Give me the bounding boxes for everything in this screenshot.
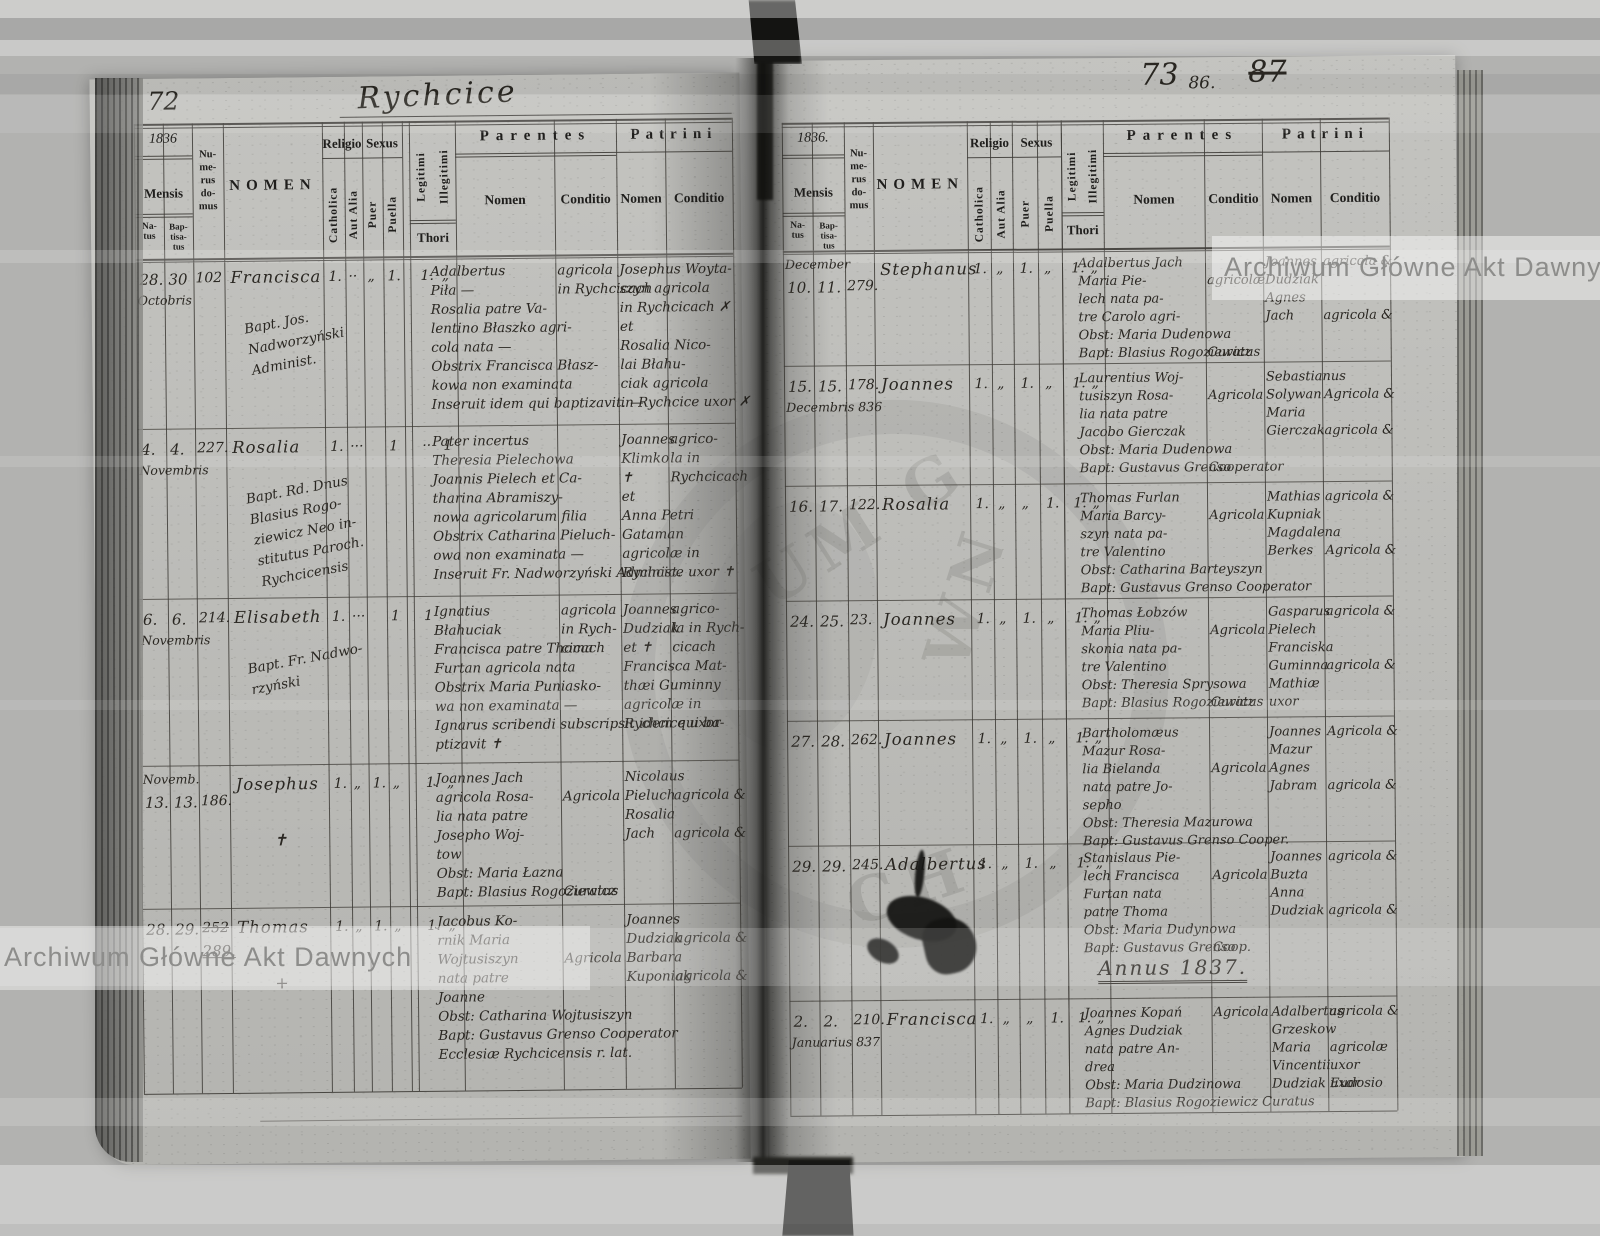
parentes-conditio-label: Conditio bbox=[1204, 191, 1262, 208]
parentes-nomen-text: Furtan nata bbox=[1083, 887, 1161, 903]
entry-natus-day: 24. bbox=[790, 613, 814, 631]
patrini-conditio-text: uxor bbox=[1330, 1058, 1360, 1073]
illegitimi-label: Illegitimi bbox=[437, 137, 450, 217]
patrini-nomen-text: Franciska bbox=[1268, 640, 1333, 656]
entry-natus-day: 2. bbox=[794, 1013, 808, 1031]
parentes-nomen-text: Obstrix Catharina Pieluch- bbox=[433, 527, 615, 545]
register-table-right: 1836.MensisNa- tusBap- tisa- tusNu- me- … bbox=[758, 55, 1465, 1163]
patrini-nomen-text: Dudziak bbox=[1271, 903, 1325, 918]
parentes-nomen-text: Wojtusiszyn bbox=[437, 951, 518, 968]
parentes-conditio-text: in Rych- bbox=[561, 621, 617, 638]
thori-overline-2 bbox=[1062, 215, 1104, 216]
patrini-nomen-label: Nomen bbox=[1262, 190, 1320, 207]
parentes-nomen-text: Maria Barcy- bbox=[1080, 509, 1166, 525]
entry-mark-puella: 1 bbox=[391, 608, 400, 624]
patrini-nomen-text: Anna bbox=[1270, 885, 1304, 900]
religio-label: Religio bbox=[967, 135, 1012, 151]
sexus-label: Sexus bbox=[1012, 134, 1061, 150]
patrini-nomen-text: Vincentii bbox=[1272, 1058, 1331, 1074]
parentes-nomen-text: owa non examinata — bbox=[433, 546, 584, 564]
patrini-nomen-text: Grzeskow bbox=[1272, 1022, 1337, 1038]
patrini-conditio-text: agricola & bbox=[1324, 423, 1393, 439]
entry-mark-puer: 1. bbox=[1023, 611, 1036, 627]
column-rule bbox=[344, 122, 355, 1092]
parentes-nomen-text: Thomas Furlan bbox=[1080, 490, 1180, 506]
patrini-nomen-text: ciak agricola bbox=[620, 375, 708, 392]
parentes-conditio-text: Curatus bbox=[1211, 695, 1264, 710]
entry-baptisatus-day: 25. bbox=[820, 612, 844, 630]
patrini-nomen-text: Kupniak bbox=[1267, 507, 1321, 522]
parentes-conditio-text: agricola bbox=[561, 602, 617, 619]
entry-house-number: 279. bbox=[847, 278, 878, 294]
entry-mark-puella: 1. bbox=[387, 268, 401, 284]
patrini-nomen-text: Rosalia Nico- bbox=[620, 337, 711, 354]
parentes-nomen-text: Obst: Theresia Mazurowa bbox=[1083, 815, 1253, 831]
thori-overline bbox=[410, 220, 456, 221]
column-rule bbox=[163, 124, 174, 1094]
baptisatus-label: Bap- tisa- tus bbox=[164, 221, 193, 251]
entry-mark-aut-alia: „ bbox=[354, 776, 361, 792]
parentes-nomen-text: Adalbertus Jach bbox=[1078, 255, 1183, 271]
patrini-nomen-text: Joannes bbox=[1265, 254, 1317, 269]
entry-mark-aut-alia: „ bbox=[1000, 731, 1007, 747]
entry-mark-catholica: 1. bbox=[974, 376, 987, 392]
entry-mark-catholica: 1. bbox=[977, 611, 990, 627]
patrini-nomen-text: uxor bbox=[1269, 694, 1299, 709]
entry-mark-puer: 1. bbox=[1025, 856, 1038, 872]
parentes-nomen-text: tre Valentino bbox=[1081, 660, 1166, 676]
parentes-nomen-text: Adalbertus bbox=[430, 263, 505, 280]
patrini-nomen-text: Gasparus bbox=[1268, 604, 1330, 620]
patrini-nomen-text: ✝ bbox=[621, 470, 632, 486]
parentes-conditio-text: Curatus bbox=[564, 883, 619, 900]
patrini-conditio-text: agrico- bbox=[670, 431, 718, 447]
patrini-nomen-text: Maria bbox=[1272, 1040, 1311, 1055]
parentes-nomen-text: Thomas Łobzów bbox=[1081, 605, 1188, 621]
patrini-nomen-text: Barbara bbox=[626, 949, 682, 966]
parentes-nomen-text: Obstrix Maria Puniasko- bbox=[435, 678, 602, 696]
parentes-nomen-text: Bapt: Blasius Rogoziewicz Curatus bbox=[1085, 1094, 1315, 1111]
entry-mark-catholica: 1. bbox=[973, 261, 986, 277]
parentes-label: Parentes bbox=[455, 127, 616, 146]
patrini-nomen-text: Pielech bbox=[1268, 622, 1316, 637]
entry-baptisatus-day: 11. bbox=[817, 278, 841, 296]
entry-name: Adalbertus bbox=[885, 854, 987, 874]
entry-natus-day: 4. bbox=[141, 441, 156, 459]
patrini-nomen-text: Dudziak bbox=[1265, 272, 1319, 287]
parentes-nomen-text: nowa agricolarum filia bbox=[433, 508, 587, 526]
entry-mark-puella: „ bbox=[1049, 855, 1056, 871]
parentes-nomen-text: Obst: Maria Dudenowa bbox=[1079, 327, 1232, 343]
parentes-conditio-text: Agricola bbox=[563, 788, 620, 805]
parentes-nomen-text: patre Thoma bbox=[1084, 905, 1168, 921]
patrini-nomen-text: Agnes bbox=[1265, 290, 1306, 305]
patrini-nomen-text: in Rychcice uxor ✗ bbox=[621, 394, 750, 411]
entry-natus-day: 16. bbox=[789, 498, 813, 516]
parentes-nomen-text: Furtan agricola nata bbox=[434, 659, 575, 676]
patrini-conditio-label: Conditio bbox=[1320, 190, 1389, 207]
entry-mark-catholica: 1. bbox=[976, 496, 989, 512]
parentes-nomen-text: Joannes Kopań bbox=[1084, 1005, 1182, 1021]
sexus-underline bbox=[362, 157, 402, 158]
parentes-nomen-text: nata patre Jo- bbox=[1082, 779, 1172, 795]
patrini-nomen-text: Joannes bbox=[626, 911, 680, 928]
entry-name: Joannes bbox=[881, 374, 954, 394]
parentes-nomen-text: Bapt: Gustavus Grenso Cooper. bbox=[1083, 832, 1289, 849]
entry-house-number: 178. bbox=[848, 377, 879, 393]
parentes-nomen-text: lech Francisca bbox=[1083, 868, 1179, 884]
entry-name-cross-mark: + bbox=[275, 973, 289, 992]
patrini-nomen-text: Josephus Woyta- bbox=[619, 261, 732, 278]
entry-mark-catholica: 1. bbox=[978, 731, 991, 747]
numerus-domus-label: Nu- me- rus do- mus bbox=[844, 147, 874, 212]
parentes-nomen-text: Obst: Maria Dudzinowa bbox=[1085, 1077, 1241, 1093]
entry-house-number: 262. bbox=[851, 732, 882, 748]
parentes-conditio-text: Cooperator bbox=[1209, 459, 1284, 475]
patrini-nomen-text: Joannes bbox=[621, 431, 675, 448]
entry-house-number: 214. bbox=[199, 610, 230, 626]
entry-month: Octobris bbox=[138, 292, 192, 308]
baptisatus-label: Bap- tisa- tus bbox=[813, 220, 845, 250]
entry-mark-legitimi: 1 bbox=[424, 608, 433, 624]
patrini-nomen-text: Mathias bbox=[1267, 489, 1320, 504]
parentes-conditio-text: Agricola bbox=[564, 950, 621, 967]
parentes-nomen-text: szyn nata pa- bbox=[1080, 527, 1167, 543]
parentes-nomen-text: Theresia Pielechowa bbox=[432, 451, 574, 468]
parentes-nomen-text: Ecclesiæ Rychcicensis r. lat. bbox=[438, 1045, 632, 1063]
entry-house-number: 102 bbox=[195, 270, 222, 286]
entry-mark-puella: „ bbox=[1045, 376, 1052, 392]
sexus-underline bbox=[1012, 156, 1061, 157]
parentes-nomen-text: Obst: Catharina Wojtusiszyn bbox=[438, 1007, 632, 1025]
parentes-nomen-text: lentino Błaszko agri- bbox=[431, 319, 572, 336]
thori-label: Thori bbox=[410, 230, 456, 246]
parentes-nomen-text: Pater incertus bbox=[432, 433, 529, 450]
entry-month: December bbox=[785, 256, 850, 272]
entry-natus-day: 28. bbox=[146, 921, 170, 939]
parentes-conditio-text: Agricola bbox=[1209, 508, 1264, 523]
scan-band bbox=[0, 0, 1600, 18]
patrini-nomen-text: Klimko bbox=[621, 450, 669, 467]
patrini-nomen-text: Mazur bbox=[1269, 742, 1312, 757]
parentes-nomen-text: tow bbox=[436, 847, 461, 863]
patrini-nomen-text: Gierczak bbox=[1266, 423, 1324, 439]
parentes-nomen-text: Bartholomæus bbox=[1082, 725, 1179, 741]
patrini-underline bbox=[616, 151, 732, 153]
entry-mark-legitimi: ·· bbox=[422, 438, 431, 454]
patrini-conditio-text: agricola & bbox=[1329, 1004, 1398, 1020]
entry-name: Rosalia bbox=[882, 494, 950, 514]
entry-mark-puer: „ bbox=[1022, 496, 1029, 512]
patrini-nomen-text: Dudziak bbox=[626, 930, 682, 947]
column-rule bbox=[362, 122, 373, 1092]
parentes-nomen-text: Obst: Maria Dudenowa bbox=[1080, 442, 1233, 458]
entry-name: Francisca bbox=[886, 1009, 977, 1029]
patrini-nomen-label: Nomen bbox=[617, 190, 666, 207]
entry-mark-aut-alia: „ bbox=[997, 376, 1004, 392]
entry-mark-aut-alia: „ bbox=[1003, 1011, 1010, 1027]
parentes-nomen-text: sepho bbox=[1083, 798, 1122, 813]
entry-house-number: 23. bbox=[850, 612, 872, 628]
parentes-nomen-text: lia nata patre bbox=[1079, 407, 1168, 423]
parentes-nomen-text: lech nata pa- bbox=[1078, 292, 1163, 308]
patrini-nomen-text: Sebastianus bbox=[1266, 369, 1346, 385]
illegitimi-label: Illegitimi bbox=[1086, 136, 1099, 216]
parentes-nomen-text: Joannes Jach bbox=[436, 770, 524, 787]
parentes-conditio-text: agricolæ bbox=[1207, 273, 1265, 289]
religio-underline bbox=[967, 157, 1012, 158]
parentes-nomen-text: Joanne bbox=[438, 989, 485, 1005]
parentes-conditio-text: Coop. bbox=[1213, 940, 1251, 955]
parentes-conditio-label: Conditio bbox=[555, 191, 617, 208]
year-label: 1836. bbox=[782, 130, 844, 147]
patrini-nomen-text: szyn agricola bbox=[619, 280, 709, 297]
parentes-underline-2 bbox=[455, 155, 616, 158]
patrini-nomen-text: et bbox=[620, 319, 634, 335]
puer-label: Puer bbox=[1019, 174, 1032, 254]
parentes-nomen-text: kowa non examinata bbox=[431, 376, 572, 393]
entry-house-number: 210. bbox=[854, 1012, 885, 1028]
legitimi-label: Legitimi bbox=[1065, 136, 1078, 216]
entry-mark-puer: 1. bbox=[1024, 731, 1037, 747]
entry-month: Decembris 836 bbox=[786, 399, 882, 415]
patrini-nomen-text: Joannes bbox=[1270, 849, 1322, 864]
parentes-nomen-text: tusiszyn Rosa- bbox=[1079, 388, 1173, 404]
parentes-nomen-text: Mazur Rosa- bbox=[1082, 744, 1165, 760]
entry-mark-puer: 1. bbox=[373, 775, 387, 791]
entry-mark-aut-alia: „ bbox=[1001, 856, 1008, 872]
entry-mark-puella: 1. bbox=[1051, 1010, 1064, 1026]
entry-mark-catholica: 1. bbox=[335, 919, 349, 935]
entry-baptisatus-day: 17. bbox=[819, 497, 843, 515]
patrini-nomen-text: Jabram bbox=[1269, 778, 1317, 793]
aut-alia-label: Aut Alia bbox=[347, 175, 360, 255]
clergy-note-line: Bapt. Fr. Nadwo- bbox=[246, 640, 363, 677]
catholica-label: Catholica bbox=[327, 175, 340, 255]
entry-name: Thomas bbox=[237, 917, 309, 937]
entry-mark-aut-alia: „ bbox=[355, 919, 362, 935]
parentes-nomen-label: Nomen bbox=[1103, 191, 1204, 208]
patrini-conditio-text: agricola & bbox=[1326, 604, 1395, 620]
entry-house-number: 227. bbox=[197, 440, 228, 456]
parentes-nomen-text: Agnes Dudziak bbox=[1085, 1023, 1183, 1039]
parentes-underline bbox=[1103, 152, 1262, 154]
entry-baptisatus-day: 30 bbox=[168, 270, 187, 288]
parentes-nomen-text: Obstrix Francisca Błasz- bbox=[431, 357, 598, 375]
entry-mark-aut-alia: „ bbox=[996, 261, 1003, 277]
parentes-nomen-text: cola nata — bbox=[431, 339, 512, 356]
entry-month: Novembris bbox=[141, 632, 210, 648]
entry-natus-day: 29. bbox=[792, 858, 816, 876]
entry-mark-puer: 1. bbox=[1020, 376, 1033, 392]
entry-name-cross-mark: ✝ bbox=[274, 830, 288, 849]
parentes-nomen-text: Obst: Maria Dudynowa bbox=[1084, 922, 1236, 938]
entry-mark-aut-alia: „ bbox=[999, 611, 1006, 627]
entry-house-number: 245. bbox=[852, 857, 883, 873]
entry-mark-catholica: 1. bbox=[979, 856, 992, 872]
patrini-nomen-text: Mathiæ bbox=[1269, 676, 1320, 691]
parentes-nomen-text: Ignatius bbox=[434, 603, 490, 620]
entry-mark-puer: 1. bbox=[1019, 261, 1032, 277]
parentes-nomen-text: tre Valentino bbox=[1080, 545, 1165, 561]
entry-mark-aut-alia: ·· bbox=[348, 269, 357, 285]
entry-mark-puella: „ bbox=[394, 918, 401, 934]
entry-baptisatus-day: 29. bbox=[175, 920, 199, 938]
entry-natus-day: 27. bbox=[791, 733, 815, 751]
patrini-nomen-text: Guminna bbox=[1268, 658, 1328, 674]
patrini-conditio-text: agricolæ bbox=[1330, 1040, 1388, 1056]
parentes-nomen-text: Obst: Theresia Sprysowa bbox=[1082, 677, 1247, 693]
patrini-conditio-text: agricola & bbox=[1323, 308, 1392, 324]
thori-overline-2 bbox=[410, 223, 456, 224]
entry-mark-puella: „ bbox=[393, 775, 400, 791]
patrini-conditio-text: agricola & bbox=[1325, 489, 1394, 505]
entry-mark-catholica: 1. bbox=[334, 776, 348, 792]
puella-label: Puella bbox=[386, 174, 399, 254]
parentes-nomen-text: nata patre bbox=[438, 970, 509, 987]
entry-name: Stephanus bbox=[880, 259, 978, 279]
mensis-label: Mensis bbox=[782, 184, 844, 201]
patrini-underline bbox=[1262, 151, 1389, 153]
mensis-label: Mensis bbox=[134, 185, 192, 202]
parentes-nomen-text: Błahuciak bbox=[434, 622, 502, 639]
patrini-conditio-text: Agricola & bbox=[1324, 387, 1395, 403]
patrini-conditio-text: Eudosio bbox=[1330, 1076, 1383, 1091]
patrini-nomen-text: Agnes bbox=[1269, 760, 1310, 775]
parentes-nomen-text: tre Carolo agri- bbox=[1078, 309, 1180, 325]
parentes-nomen-text: Jacobo Gierczak bbox=[1079, 424, 1186, 440]
sexus-label: Sexus bbox=[362, 135, 402, 151]
entry-baptisatus-day: 29. bbox=[822, 857, 846, 875]
patrini-nomen-text: Solywan bbox=[1266, 387, 1322, 402]
entry-mark-catholica: 1. bbox=[330, 439, 344, 455]
parentes-label: Parentes bbox=[1103, 127, 1262, 145]
patrini-conditio-text: agricola & bbox=[1327, 778, 1396, 794]
patrini-nomen-text: in Rychcicach ✗ bbox=[620, 299, 731, 316]
nomen-column-label: NOMEN bbox=[223, 177, 322, 195]
patrini-nomen-text: Berkes bbox=[1267, 543, 1313, 558]
entry-month: Januarius 837 bbox=[792, 1034, 880, 1050]
entry-house-number-corrected: 289. bbox=[202, 942, 236, 960]
patrini-label: Patrini bbox=[616, 126, 732, 144]
patrini-nomen-text: Jach bbox=[625, 826, 655, 842]
parentes-nomen-text: Inseruit idem qui baptizavit. — bbox=[432, 395, 644, 413]
bookmark-ribbon-top bbox=[744, 0, 802, 64]
patrini-conditio-text: la in bbox=[670, 450, 700, 466]
patrini-conditio-text: agricola & bbox=[1329, 903, 1398, 919]
religio-label: Religio bbox=[322, 136, 362, 152]
column-rule bbox=[1061, 120, 1071, 1113]
book-gutter-shadow bbox=[735, 58, 789, 1162]
parentes-nomen-text: tharina Abramiszy- bbox=[433, 489, 563, 506]
parentes-nomen-text: drea bbox=[1085, 1060, 1115, 1075]
entry-natus-day: 6. bbox=[143, 611, 158, 629]
entry-mark-aut-alia: ··· bbox=[350, 439, 364, 455]
patrini-nomen-text: Magdalena bbox=[1267, 525, 1341, 541]
entry-mark-puella: „ bbox=[1047, 610, 1054, 626]
parentes-conditio-text: cicach bbox=[561, 640, 605, 656]
religio-underline bbox=[322, 158, 362, 159]
entry-month: Novembris bbox=[139, 462, 208, 478]
entry-natus-day: 13. bbox=[145, 794, 169, 812]
column-rule bbox=[382, 121, 393, 1091]
parentes-nomen-text: Joannis Pielech et Ca- bbox=[432, 470, 582, 488]
entry-house-number: 252 bbox=[202, 920, 229, 936]
parentes-nomen-text: Piła — bbox=[430, 282, 474, 298]
nomen-column-label: NOMEN bbox=[873, 176, 967, 194]
register-right-page: UM G WN CH 73 86. 87 Annus 1837. 1836.Me… bbox=[758, 55, 1465, 1163]
entry-month: Novemb. bbox=[143, 771, 200, 787]
entry-natus-day: 10. bbox=[787, 279, 811, 297]
annus-1837-heading: Annus 1837. bbox=[1098, 955, 1247, 984]
book-left-page-edges bbox=[95, 78, 143, 1162]
patrini-nomen-text: Joannes bbox=[1269, 724, 1321, 739]
entry-baptisatus-day: 28. bbox=[821, 732, 845, 750]
puer-label: Puer bbox=[366, 174, 379, 254]
parentes-conditio-text: Agricola bbox=[1208, 388, 1263, 403]
parentes-conditio-text: Agricola bbox=[1213, 1005, 1268, 1020]
patrini-conditio-text: agricola & bbox=[1326, 658, 1395, 674]
entry-house-number: 122. bbox=[849, 497, 880, 513]
entry-baptisatus-day: 15. bbox=[818, 377, 842, 395]
entry-baptisatus-day: 2. bbox=[824, 1012, 838, 1030]
parentes-conditio-text: Agricola bbox=[1211, 761, 1266, 776]
entry-mark-puer: 1. bbox=[374, 918, 388, 934]
parentes-nomen-text: Maria Pliu- bbox=[1081, 624, 1154, 640]
parentes-nomen-text: lia nata patre bbox=[436, 808, 528, 825]
entry-mark-puer: „ bbox=[367, 268, 374, 284]
parentes-nomen-text: nata patre An- bbox=[1085, 1041, 1180, 1057]
entry-mark-puer: „ bbox=[1026, 1011, 1033, 1027]
entry-mark-aut-alia: „ bbox=[998, 496, 1005, 512]
parentes-nomen-label: Nomen bbox=[456, 192, 555, 209]
scan-band bbox=[0, 18, 1600, 40]
parentes-nomen-text: Jacobus Ko- bbox=[437, 913, 517, 930]
entry-mark-catholica: 1. bbox=[332, 609, 346, 625]
catholica-label: Catholica bbox=[973, 174, 986, 254]
entry-name: Josephus bbox=[236, 774, 319, 794]
patrini-conditio-text: Agricola & bbox=[1327, 724, 1398, 740]
entry-mark-puella: „ bbox=[1044, 261, 1051, 277]
entry-mark-aut-alia: ··· bbox=[352, 609, 366, 625]
clergy-note-line: rzyński bbox=[250, 673, 301, 698]
column-rule bbox=[192, 123, 203, 1093]
entry-natus-day: 15. bbox=[788, 378, 812, 396]
patrini-conditio-label: Conditio bbox=[666, 190, 733, 207]
book-right-page-edges bbox=[1457, 70, 1483, 1156]
patrini-nomen-text: et bbox=[622, 489, 636, 505]
entry-mark-puella: 1. bbox=[1046, 495, 1059, 511]
patrini-label: Patrini bbox=[1262, 126, 1389, 144]
parentes-nomen-text: Laurentius Woj- bbox=[1079, 370, 1183, 386]
entry-house-number: 186. bbox=[201, 793, 232, 809]
parentes-nomen-text: lia Bielanda bbox=[1082, 762, 1160, 778]
entry-baptisatus-day: 13. bbox=[174, 793, 198, 811]
parentes-nomen-text: agricola Rosa- bbox=[436, 789, 534, 806]
parentes-nomen-text: Bapt: Gustavus Grenso Cooperator bbox=[438, 1025, 677, 1044]
legitimi-label: Legitimi bbox=[414, 137, 427, 217]
numerus-domus-label: Nu- me- rus do- mus bbox=[192, 148, 224, 213]
bookmark-ribbon-top-tail bbox=[757, 60, 773, 200]
patrini-conditio-text: agricola & bbox=[1328, 849, 1397, 865]
parentes-conditio-text: Agricola bbox=[1210, 623, 1265, 638]
patrini-nomen-text: Jach bbox=[1265, 308, 1294, 323]
puella-label: Puella bbox=[1043, 173, 1056, 253]
parentes-nomen-text: rnik Maria bbox=[437, 932, 510, 949]
parentes-conditio-text: Agricola bbox=[1212, 868, 1267, 883]
aut-alia-label: Aut Alia bbox=[995, 174, 1008, 254]
patrini-nomen-text: lai Błahu- bbox=[620, 356, 685, 373]
